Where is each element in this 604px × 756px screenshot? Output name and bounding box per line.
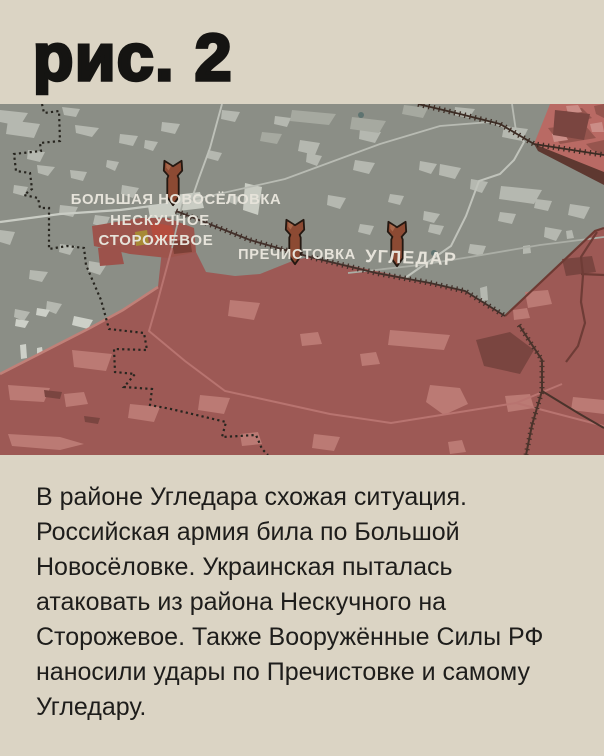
- svg-text:СТОРОЖЕВОЕ: СТОРОЖЕВОЕ: [99, 232, 214, 249]
- svg-text:НЕСКУЧНОЕ: НЕСКУЧНОЕ: [110, 212, 210, 229]
- svg-text:ПРЕЧИСТОВКА: ПРЕЧИСТОВКА: [238, 247, 356, 263]
- svg-text:БОЛЬШАЯ НОВОСЁЛОВКА: БОЛЬШАЯ НОВОСЁЛОВКА: [71, 191, 281, 208]
- svg-text:УГЛЕДАР: УГЛЕДАР: [365, 246, 457, 269]
